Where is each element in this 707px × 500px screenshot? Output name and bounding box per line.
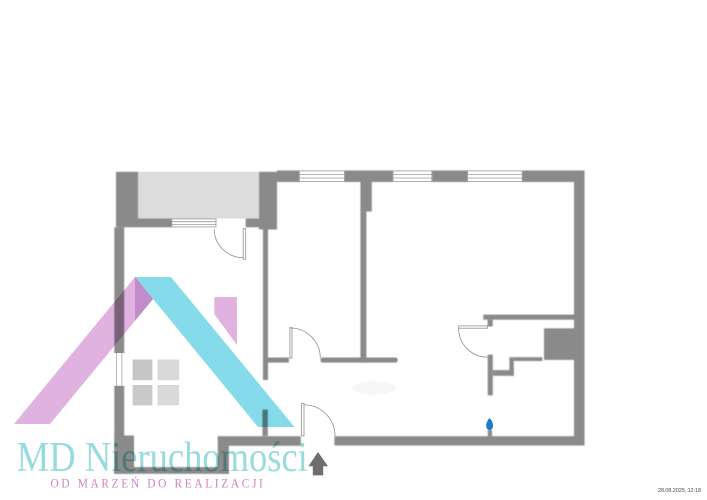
svg-text:28.08.2025, 12:18: 28.08.2025, 12:18 — [658, 488, 701, 494]
svg-text:OD MARZEŃ DO REALIZACJI: OD MARZEŃ DO REALIZACJI — [51, 476, 266, 491]
svg-text:MD Nieruchomości: MD Nieruchomości — [17, 435, 308, 481]
